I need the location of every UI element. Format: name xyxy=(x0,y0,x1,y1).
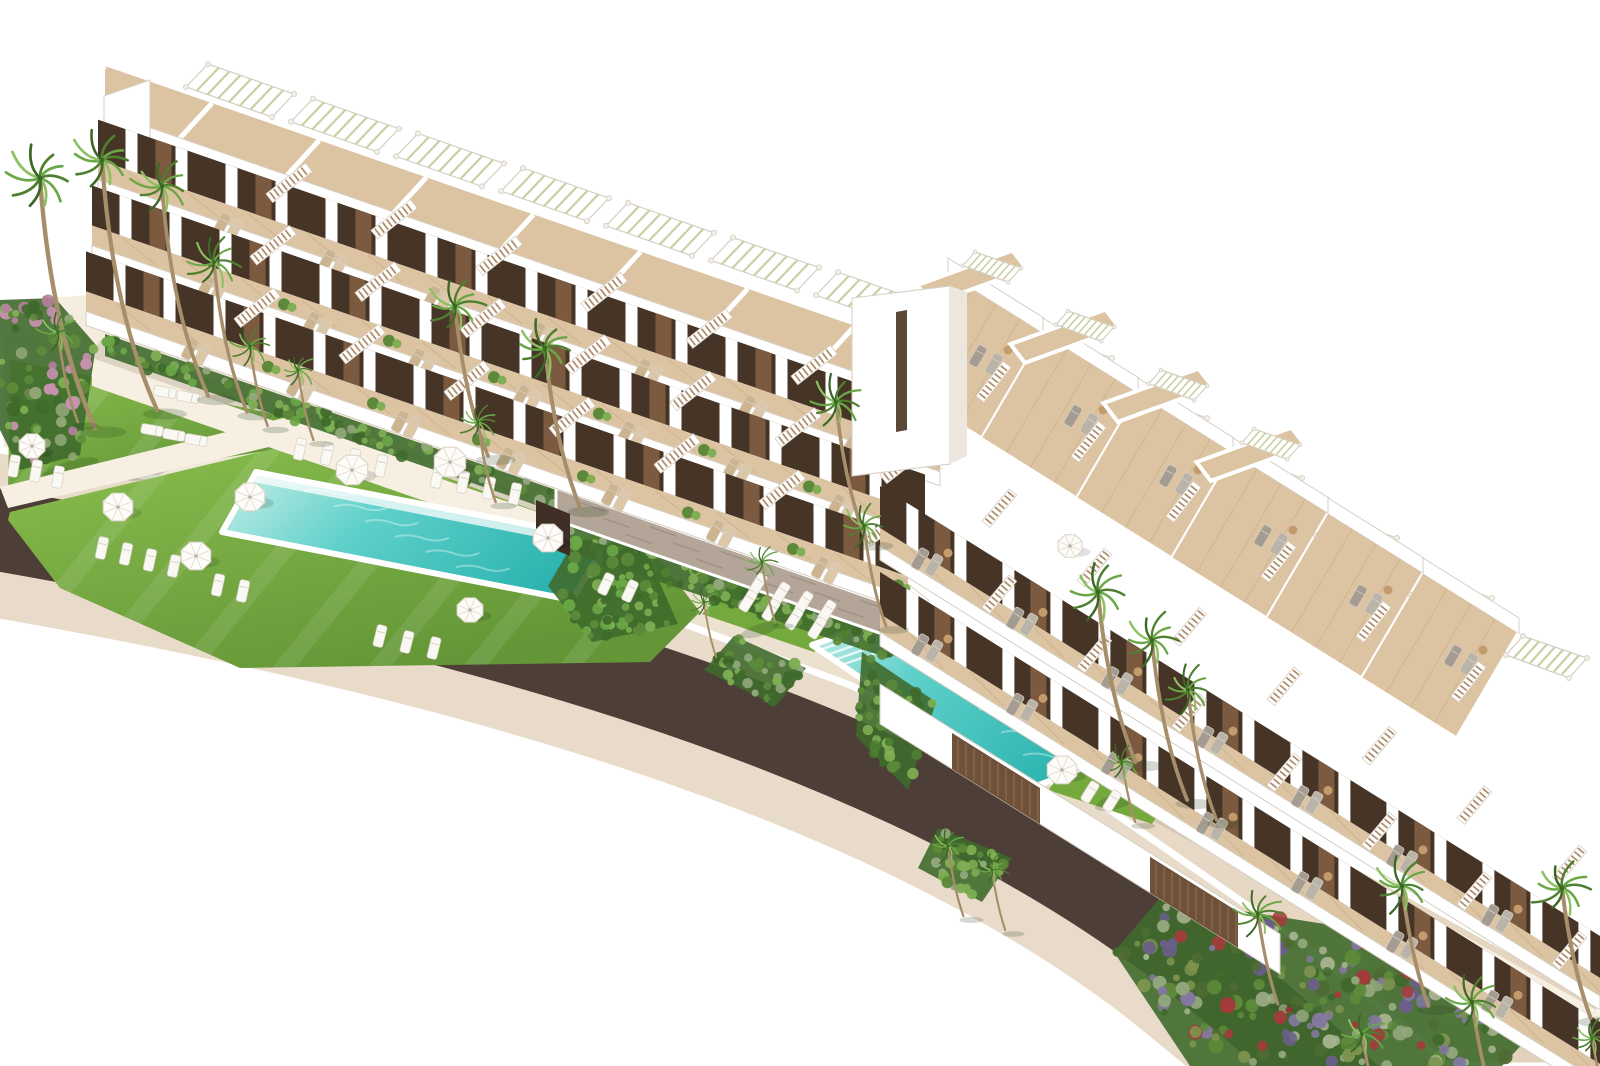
staircase xyxy=(1457,786,1492,825)
staircase xyxy=(1267,667,1302,706)
stair-tower xyxy=(852,286,967,476)
architectural-render xyxy=(0,0,1600,1066)
staircase xyxy=(982,489,1017,528)
staircase xyxy=(1362,726,1397,765)
aerial-resort-render xyxy=(0,0,1600,1066)
parasol xyxy=(1058,535,1091,558)
